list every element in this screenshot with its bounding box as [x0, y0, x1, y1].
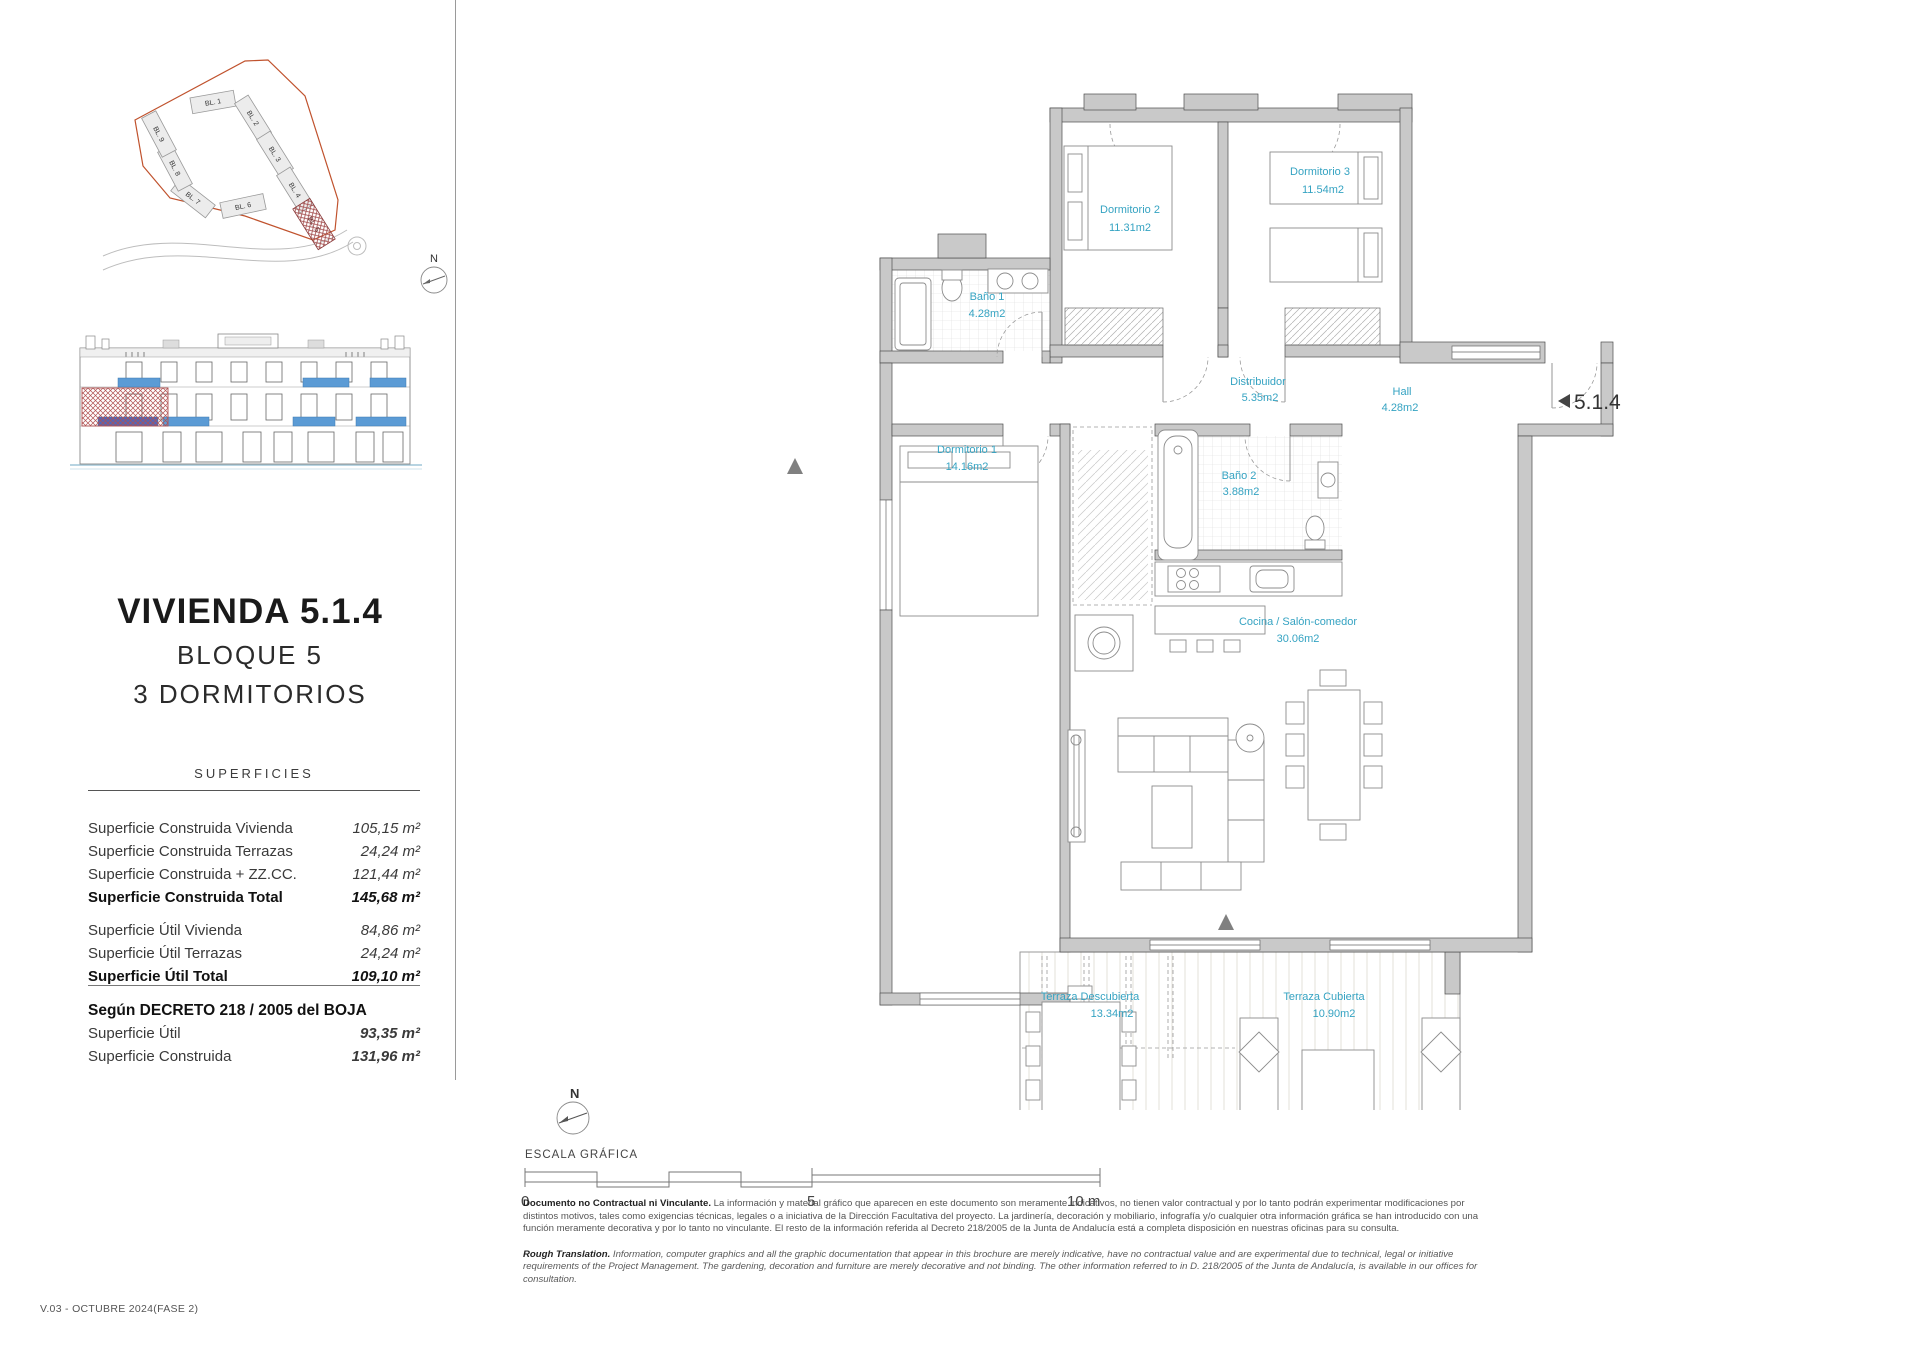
- scale-heading: ESCALA GRÁFICA: [525, 1148, 638, 1161]
- room-label-distribuidor: Distribuidor: [1230, 376, 1286, 388]
- room-label-cocina-salon: Cocina / Salón-comedor: [1239, 616, 1357, 628]
- unit-label: 5.1.4: [1574, 391, 1621, 414]
- subtitle-bloque: BLOQUE 5: [40, 640, 460, 671]
- room-area-terraza-cubierta: 10.90m2: [1313, 1008, 1356, 1020]
- north-label: N: [570, 1086, 579, 1101]
- floor-plan: Dormitorio 2 11.31m2 Dormitorio 3 11.54m…: [690, 50, 1640, 1110]
- room-area-dormitorio-2: 11.31m2: [1109, 222, 1151, 234]
- room-label-terraza-descubierta: Terraza Descubierta: [1041, 991, 1140, 1003]
- decreto-section: Según DECRETO 218 / 2005 del BOJA Superf…: [88, 985, 420, 1068]
- page-title: VIVIENDA 5.1.4: [40, 592, 460, 632]
- section-marker: [1218, 914, 1234, 930]
- decreto-row: Superficie Útil 93,35 m²: [88, 1022, 420, 1045]
- superficie-row: Superficie Construida + ZZ.CC. 121,44 m²: [88, 863, 420, 886]
- room-area-bano-2: 3.88m2: [1223, 486, 1260, 498]
- room-label-dormitorio-3: Dormitorio 3: [1290, 166, 1350, 178]
- room-label-dormitorio-2: Dormitorio 2: [1100, 204, 1160, 216]
- disclaimer-es: Documento no Contractual ni Vinculante. …: [523, 1198, 1478, 1234]
- room-area-bano-1: 4.28m2: [969, 308, 1006, 320]
- site-block-6: BL. 6: [220, 194, 266, 219]
- disclaimer: Documento no Contractual ni Vinculante. …: [523, 1198, 1495, 1287]
- disclaimer-en: Rough Translation. Information, computer…: [523, 1249, 1495, 1287]
- room-area-distribuidor: 5.35m2: [1242, 392, 1279, 404]
- superficie-row-total: Superficie Construida Total 145,68 m²: [88, 886, 420, 909]
- site-plan: BL. 1 BL. 2 BL. 3 BL. 4 BL. 5 BL. 6 BL. …: [95, 48, 425, 293]
- closet-hatch: [1078, 450, 1148, 600]
- superficie-row: Superficie Construida Vivienda 105,15 m²: [88, 817, 420, 840]
- room-label-terraza-cubierta: Terraza Cubierta: [1283, 991, 1365, 1003]
- superficies-heading: SUPERFICIES: [88, 766, 420, 791]
- room-label-bano-2: Baño 2: [1222, 470, 1257, 482]
- version-label: V.03 - OCTUBRE 2024(FASE 2): [40, 1303, 198, 1315]
- column-divider: [455, 0, 456, 1080]
- room-label-bano-1: Baño 1: [970, 291, 1005, 303]
- room-area-terraza-descubierta: 13.34m2: [1091, 1008, 1134, 1020]
- decreto-row: Superficie Construida 131,96 m²: [88, 1045, 420, 1068]
- north-arrow-large: [557, 1102, 589, 1134]
- decreto-heading: Según DECRETO 218 / 2005 del BOJA: [88, 1000, 420, 1022]
- section-marker: [787, 458, 803, 474]
- subtitle-dormitorios: 3 DORMITORIOS: [40, 679, 460, 710]
- superficie-row: Superficie Construida Terrazas 24,24 m²: [88, 840, 420, 863]
- svg-text:N: N: [430, 253, 438, 265]
- room-area-hall: 4.28m2: [1382, 402, 1419, 414]
- site-block-9: BL. 9: [142, 111, 177, 157]
- room-label-hall: Hall: [1393, 386, 1412, 398]
- superficies-section: SUPERFICIES Superficie Construida Vivien…: [88, 766, 420, 988]
- north-arrow-small: N: [408, 248, 468, 308]
- building-elevation: [68, 328, 424, 478]
- scale-bar: [525, 1168, 1100, 1187]
- room-label-dormitorio-1: Dormitorio 1: [937, 444, 997, 456]
- superficie-row: Superficie Útil Terrazas 24,24 m²: [88, 942, 420, 965]
- room-area-dormitorio-1: 14.16m2: [946, 461, 989, 473]
- scale-bar-group: N ESCALA GRÁFICA 0 5 10 m: [515, 1082, 1115, 1210]
- room-area-cocina-salon: 30.06m2: [1277, 633, 1320, 645]
- site-block-5-highlighted: BL. 5: [293, 198, 335, 249]
- room-area-dormitorio-3: 11.54m2: [1302, 184, 1344, 196]
- entrance-marker: 5.1.4: [1558, 391, 1621, 414]
- site-block-1: BL. 1: [190, 90, 236, 113]
- superficie-row: Superficie Útil Vivienda 84,86 m²: [88, 919, 420, 942]
- elevation-unit-highlight: [82, 388, 168, 426]
- title-block: VIVIENDA 5.1.4 BLOQUE 5 3 DORMITORIOS: [40, 592, 460, 710]
